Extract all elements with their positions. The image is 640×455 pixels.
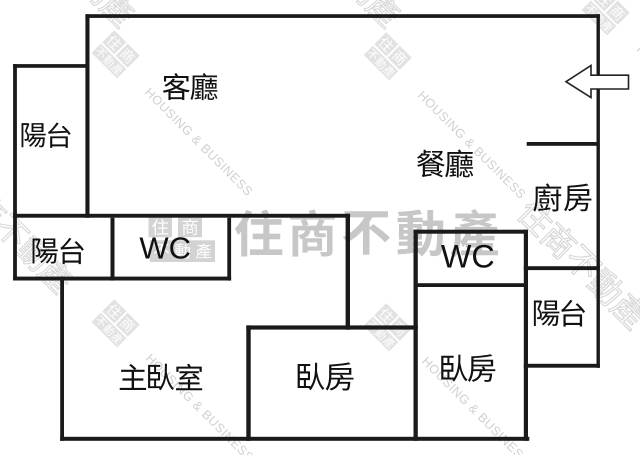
svg-text:WC: WC xyxy=(139,230,191,265)
svg-text:WC: WC xyxy=(441,239,495,275)
